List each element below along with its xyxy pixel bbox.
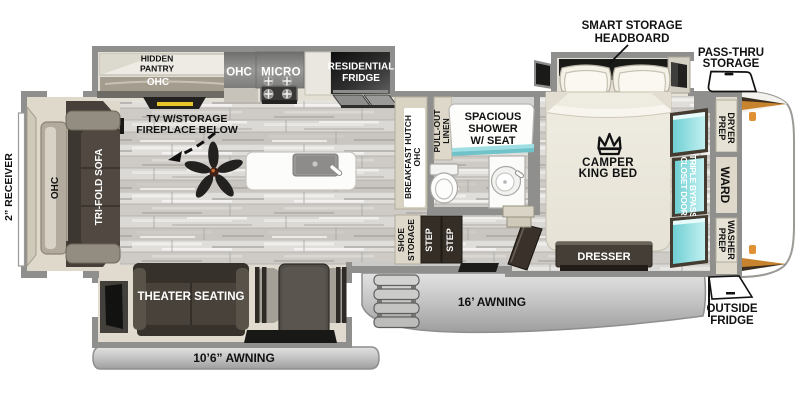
- svg-text:STEP: STEP: [445, 228, 455, 252]
- svg-text:STORAGE: STORAGE: [406, 219, 416, 261]
- svg-text:PANTRY: PANTRY: [140, 64, 174, 74]
- svg-text:FIREPLACE BELOW: FIREPLACE BELOW: [136, 124, 238, 136]
- svg-text:16’ AWNING: 16’ AWNING: [458, 295, 526, 309]
- svg-text:10’6” AWNING: 10’6” AWNING: [193, 351, 275, 365]
- svg-text:OHC: OHC: [226, 67, 252, 79]
- svg-text:DRESSER: DRESSER: [577, 251, 630, 263]
- svg-text:SHOE: SHOE: [396, 228, 406, 252]
- svg-text:PREP: PREP: [717, 228, 727, 253]
- svg-text:2” RECEIVER: 2” RECEIVER: [3, 153, 15, 221]
- svg-text:SHOWER: SHOWER: [468, 123, 518, 135]
- svg-text:SMART STORAGE: SMART STORAGE: [582, 20, 683, 32]
- svg-text:KING BED: KING BED: [579, 168, 638, 180]
- svg-text:HIDDEN: HIDDEN: [141, 54, 174, 64]
- svg-text:SPACIOUS: SPACIOUS: [465, 111, 522, 123]
- svg-text:PREP: PREP: [717, 116, 727, 141]
- svg-text:HEADBOARD: HEADBOARD: [595, 33, 670, 45]
- svg-text:W/ SEAT: W/ SEAT: [470, 135, 515, 147]
- svg-text:FRIDGE: FRIDGE: [710, 315, 754, 327]
- svg-text:CLOSET DOOR: CLOSET DOOR: [679, 156, 689, 215]
- svg-text:THEATER SEATING: THEATER SEATING: [138, 291, 245, 303]
- svg-text:WARD: WARD: [718, 167, 732, 204]
- svg-text:OHC: OHC: [50, 177, 61, 199]
- svg-text:OHC: OHC: [412, 148, 422, 167]
- svg-text:OHC: OHC: [147, 77, 169, 88]
- svg-text:STEP: STEP: [424, 228, 434, 252]
- svg-text:TRI-FOLD SOFA: TRI-FOLD SOFA: [94, 149, 105, 226]
- svg-text:FRIDGE: FRIDGE: [342, 73, 380, 84]
- svg-text:OUTSIDE: OUTSIDE: [706, 303, 757, 315]
- svg-text:STORAGE: STORAGE: [703, 58, 760, 70]
- svg-text:RESIDENTIAL: RESIDENTIAL: [328, 62, 395, 73]
